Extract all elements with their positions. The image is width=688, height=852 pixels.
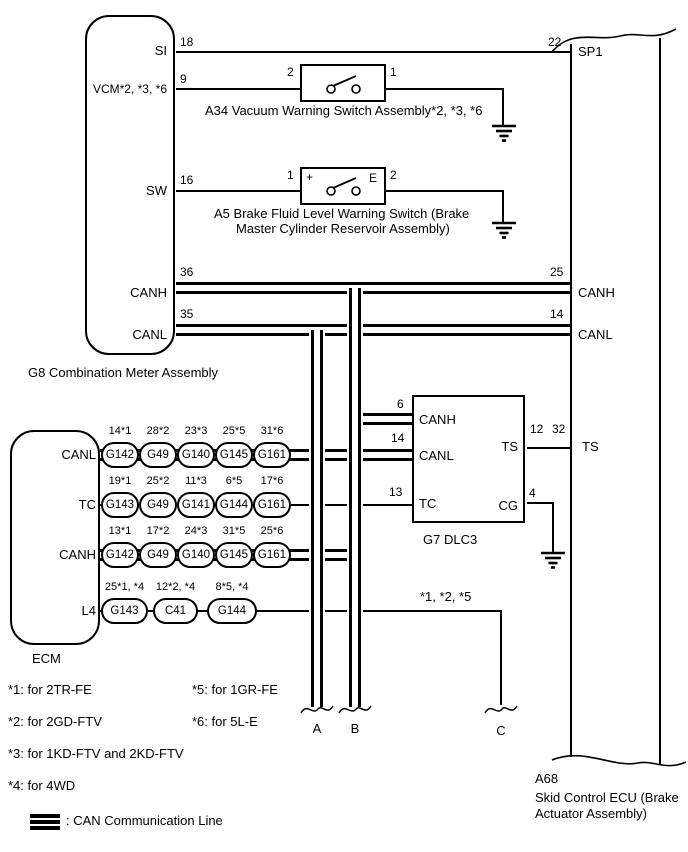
connector-oval: G142 xyxy=(101,442,139,468)
branch-b-label: B xyxy=(347,722,363,736)
connector-oval: G140 xyxy=(177,442,215,468)
a34-ground-icon xyxy=(492,126,516,141)
connector-pin-label: 13*1 xyxy=(101,525,139,537)
a68-pin-canh-number: 25 xyxy=(550,266,563,279)
connector-pin-label: 28*2 xyxy=(139,425,177,437)
footnote-3: *3: for 1KD-FTV and 2KD-FTV xyxy=(8,747,184,761)
footnote-6: *6: for 5L-E xyxy=(192,715,258,729)
g7-pin-canl-number: 14 xyxy=(391,432,404,445)
ecm-row-l4-label: L4 xyxy=(28,604,96,618)
g8-pin-canl-label: CANL xyxy=(87,328,167,342)
a5-caption-line1: A5 Brake Fluid Level Warning Switch (Bra… xyxy=(214,207,469,221)
branch-b-break-icon xyxy=(339,706,371,713)
g7-pin-tc-number: 13 xyxy=(389,486,402,499)
g8-pin-canl-number: 35 xyxy=(180,308,193,321)
a68-pin-sp1-label: SP1 xyxy=(578,45,603,59)
connector-oval: G144 xyxy=(215,492,253,518)
g8-pin-si-number: 18 xyxy=(180,36,193,49)
connector-pin-label: 17*2 xyxy=(139,525,177,537)
g8-pin-canh-number: 36 xyxy=(180,266,193,279)
a68-pin-ts-label: TS xyxy=(582,440,599,454)
connector-oval: G49 xyxy=(139,492,177,518)
footnote-2: *2: for 2GD-FTV xyxy=(8,715,102,729)
connector-pin-label: 31*6 xyxy=(253,425,291,437)
can-bus-canl-main xyxy=(176,324,571,336)
ecm-row-canh-label: CANH xyxy=(28,548,96,562)
a68-caption-line2: Actuator Assembly) xyxy=(535,807,647,821)
connector-oval: G142 xyxy=(101,542,139,568)
cg-ground-icon xyxy=(541,553,565,568)
connector-pin-label: 25*1, *4 xyxy=(101,581,148,593)
a68-id-label: A68 xyxy=(535,772,558,786)
connector-pin-label: 14*1 xyxy=(101,425,139,437)
a68-torn-bottom-edge xyxy=(552,756,686,766)
a5-ground-icon xyxy=(492,223,516,238)
g8-pin-sw-number: 16 xyxy=(180,174,193,187)
connector-pin-label: 8*5, *4 xyxy=(207,581,257,593)
a34-pin-right-number: 1 xyxy=(390,66,397,79)
connector-oval: G141 xyxy=(177,492,215,518)
a68-pin-canh-label: CANH xyxy=(578,286,615,300)
a5-e-terminal-label: E xyxy=(369,172,377,185)
ts-wire xyxy=(527,447,571,449)
branch-c-break-icon xyxy=(485,706,517,713)
g7-pin-ts-label: TS xyxy=(440,440,518,454)
g8-pin-vcm-number: 9 xyxy=(180,73,187,86)
a68-pin-ts-number: 32 xyxy=(552,423,565,436)
ecm-caption: ECM xyxy=(32,652,61,666)
g7-pin-tc-label: TC xyxy=(419,497,436,511)
can-line-legend-icon xyxy=(30,820,60,824)
connector-pin-label: 11*3 xyxy=(177,475,215,487)
can-vertical-branch-a xyxy=(311,330,323,707)
can-line-legend-label: : CAN Communication Line xyxy=(66,814,223,828)
si-sp1-wire xyxy=(176,51,571,53)
connector-pin-label: 25*6 xyxy=(253,525,291,537)
a5-plus-terminal-label: + xyxy=(306,171,313,184)
l4-wire-note: *1, *2, *5 xyxy=(420,590,471,604)
footnote-4: *4: for 4WD xyxy=(8,779,75,793)
connector-pin-label: 25*2 xyxy=(139,475,177,487)
g8-pin-sw-label: SW xyxy=(87,184,167,198)
cg-wire-v xyxy=(552,502,554,552)
connector-oval: G140 xyxy=(177,542,215,568)
connector-pin-label: 31*5 xyxy=(215,525,253,537)
a34-ground-wire-v xyxy=(502,88,504,125)
a5-caption-line2: Master Cylinder Reservoir Assembly) xyxy=(236,222,450,236)
g8-pin-canh-label: CANH xyxy=(87,286,167,300)
l4-wire-v xyxy=(500,610,502,705)
connector-oval: G145 xyxy=(215,542,253,568)
connector-pin-label: 19*1 xyxy=(101,475,139,487)
a5-pin-left-number: 1 xyxy=(287,169,294,182)
g8-caption: G8 Combination Meter Assembly xyxy=(28,366,218,380)
a68-pin-canl-label: CANL xyxy=(578,328,613,342)
branch-a-break-icon xyxy=(301,706,333,713)
a68-right-edge xyxy=(659,38,661,764)
wiring-diagram: SI VCM*2, *3, *6 SW CANH CANL 18 9 16 36… xyxy=(0,0,688,852)
sw-wire xyxy=(176,190,300,192)
connector-oval: G161 xyxy=(253,492,291,518)
connector-oval: G49 xyxy=(139,542,177,568)
connector-pin-label: 25*5 xyxy=(215,425,253,437)
branch-c-label: C xyxy=(493,724,509,738)
g7-pin-cg-label: CG xyxy=(440,499,518,513)
g8-pin-si-label: SI xyxy=(87,44,167,58)
connector-pin-label: 24*3 xyxy=(177,525,215,537)
can-vertical-branch-b xyxy=(349,288,361,707)
connector-oval: G145 xyxy=(215,442,253,468)
connector-oval: G161 xyxy=(253,542,291,568)
ecm-row-tc-label: TC xyxy=(28,498,96,512)
a5-pin-right-number: 2 xyxy=(390,169,397,182)
connector-oval: G143 xyxy=(101,598,148,624)
can-line-legend-icon xyxy=(30,814,60,818)
cg-wire-h xyxy=(527,502,554,504)
g7-pin-ts-number: 12 xyxy=(530,423,543,436)
connector-oval: C41 xyxy=(153,598,198,624)
connector-pin-label: 23*3 xyxy=(177,425,215,437)
footnote-1: *1: for 2TR-FE xyxy=(8,683,92,697)
g8-pin-vcm-label: VCM*2, *3, *6 xyxy=(85,82,167,96)
g7-pin-cg-number: 4 xyxy=(529,487,536,500)
can-bus-canh-main xyxy=(176,282,571,294)
a68-pin-sp1-number: 22 xyxy=(548,36,561,49)
connector-pin-label: 6*5 xyxy=(215,475,253,487)
g7-pin-canh-label: CANH xyxy=(419,413,456,427)
ecm-row-canl-label: CANL xyxy=(28,448,96,462)
g7-pin-canh-number: 6 xyxy=(397,398,404,411)
a34-caption: A34 Vacuum Warning Switch Assembly*2, *3… xyxy=(205,104,482,118)
vcm-wire xyxy=(176,88,300,90)
a68-left-edge xyxy=(570,44,572,757)
connector-pin-label: 17*6 xyxy=(253,475,291,487)
a68-caption-line1: Skid Control ECU (Brake xyxy=(535,791,679,805)
connector-pin-label: 12*2, *4 xyxy=(153,581,198,593)
connector-oval: G144 xyxy=(207,598,257,624)
branch-a-label: A xyxy=(309,722,325,736)
can-line-legend-icon xyxy=(30,826,60,830)
a34-switch-box xyxy=(300,64,386,102)
a5-ground-wire-v xyxy=(502,190,504,222)
a5-ground-wire-h xyxy=(386,190,504,192)
a68-pin-canl-number: 14 xyxy=(550,308,563,321)
a34-ground-wire-h xyxy=(386,88,504,90)
connector-oval: G49 xyxy=(139,442,177,468)
connector-oval: G143 xyxy=(101,492,139,518)
footnote-5: *5: for 1GR-FE xyxy=(192,683,278,697)
connector-oval: G161 xyxy=(253,442,291,468)
g7-caption: G7 DLC3 xyxy=(423,533,477,547)
a34-pin-left-number: 2 xyxy=(287,66,294,79)
